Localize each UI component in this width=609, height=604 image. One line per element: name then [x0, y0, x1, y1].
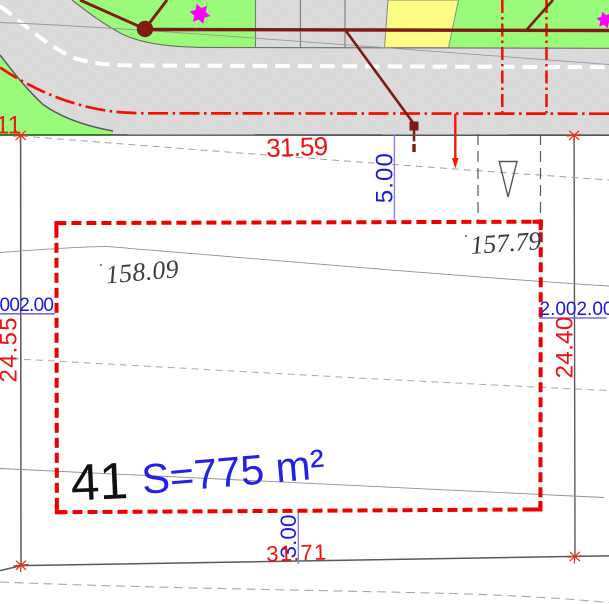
- svg-text:31.71: 31.71: [266, 539, 327, 566]
- svg-text:5.00: 5.00: [372, 153, 399, 203]
- svg-text:31.59: 31.59: [266, 131, 329, 163]
- svg-text:24.55: 24.55: [0, 318, 22, 383]
- svg-text:11: 11: [0, 112, 21, 140]
- svg-text:002.00: 002.00: [0, 295, 54, 316]
- svg-text:41: 41: [69, 451, 129, 511]
- svg-text:24.40: 24.40: [552, 317, 579, 379]
- svg-text:157.79: 157.79: [469, 226, 542, 260]
